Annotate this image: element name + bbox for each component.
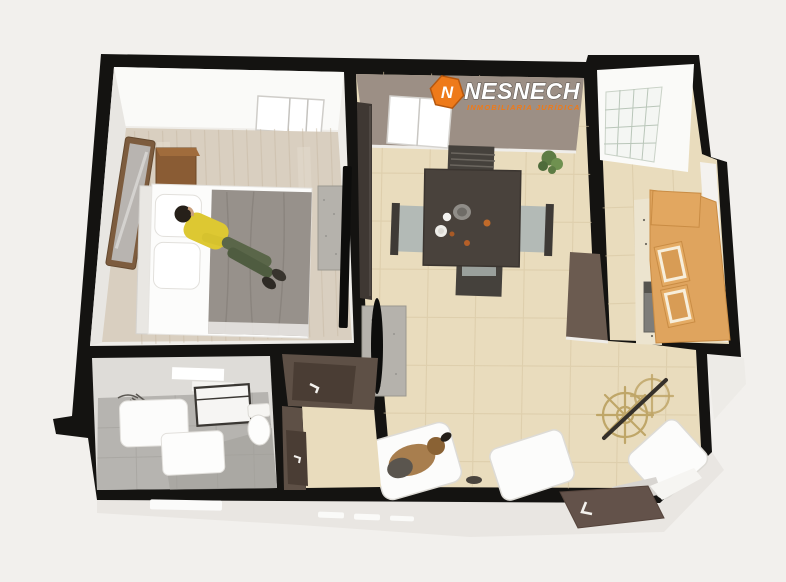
open-door-top (292, 362, 356, 404)
vanity-cabinet (161, 430, 225, 475)
upper-cabinet-top (651, 191, 701, 227)
logo-icon-letter: N (441, 83, 454, 102)
floor-item (466, 476, 482, 484)
white-doormat (150, 499, 222, 510)
brand-name: NESNECH (464, 78, 580, 104)
brand-tagline: INMOBILIARIA JURÍDICA (467, 103, 581, 112)
pillow (153, 242, 200, 289)
bedroom (90, 67, 354, 353)
vanity-mirror (172, 367, 224, 381)
dining-table (423, 169, 521, 267)
watermark-logo: N NESNECH INMOBILIARIA JURÍDICA (430, 76, 580, 112)
hall-floor (302, 406, 381, 488)
double-bed (136, 184, 312, 338)
floor-plan-render: N NESNECH INMOBILIARIA JURÍDICA (0, 0, 786, 582)
bedroom-dresser (318, 186, 344, 270)
towel-rack (195, 384, 252, 426)
hallway (282, 354, 381, 490)
bathroom (92, 356, 280, 495)
floor-plan-screenshot: N NESNECH INMOBILIARIA JURÍDICA (0, 0, 786, 582)
kitchen-cabinets (634, 190, 730, 345)
